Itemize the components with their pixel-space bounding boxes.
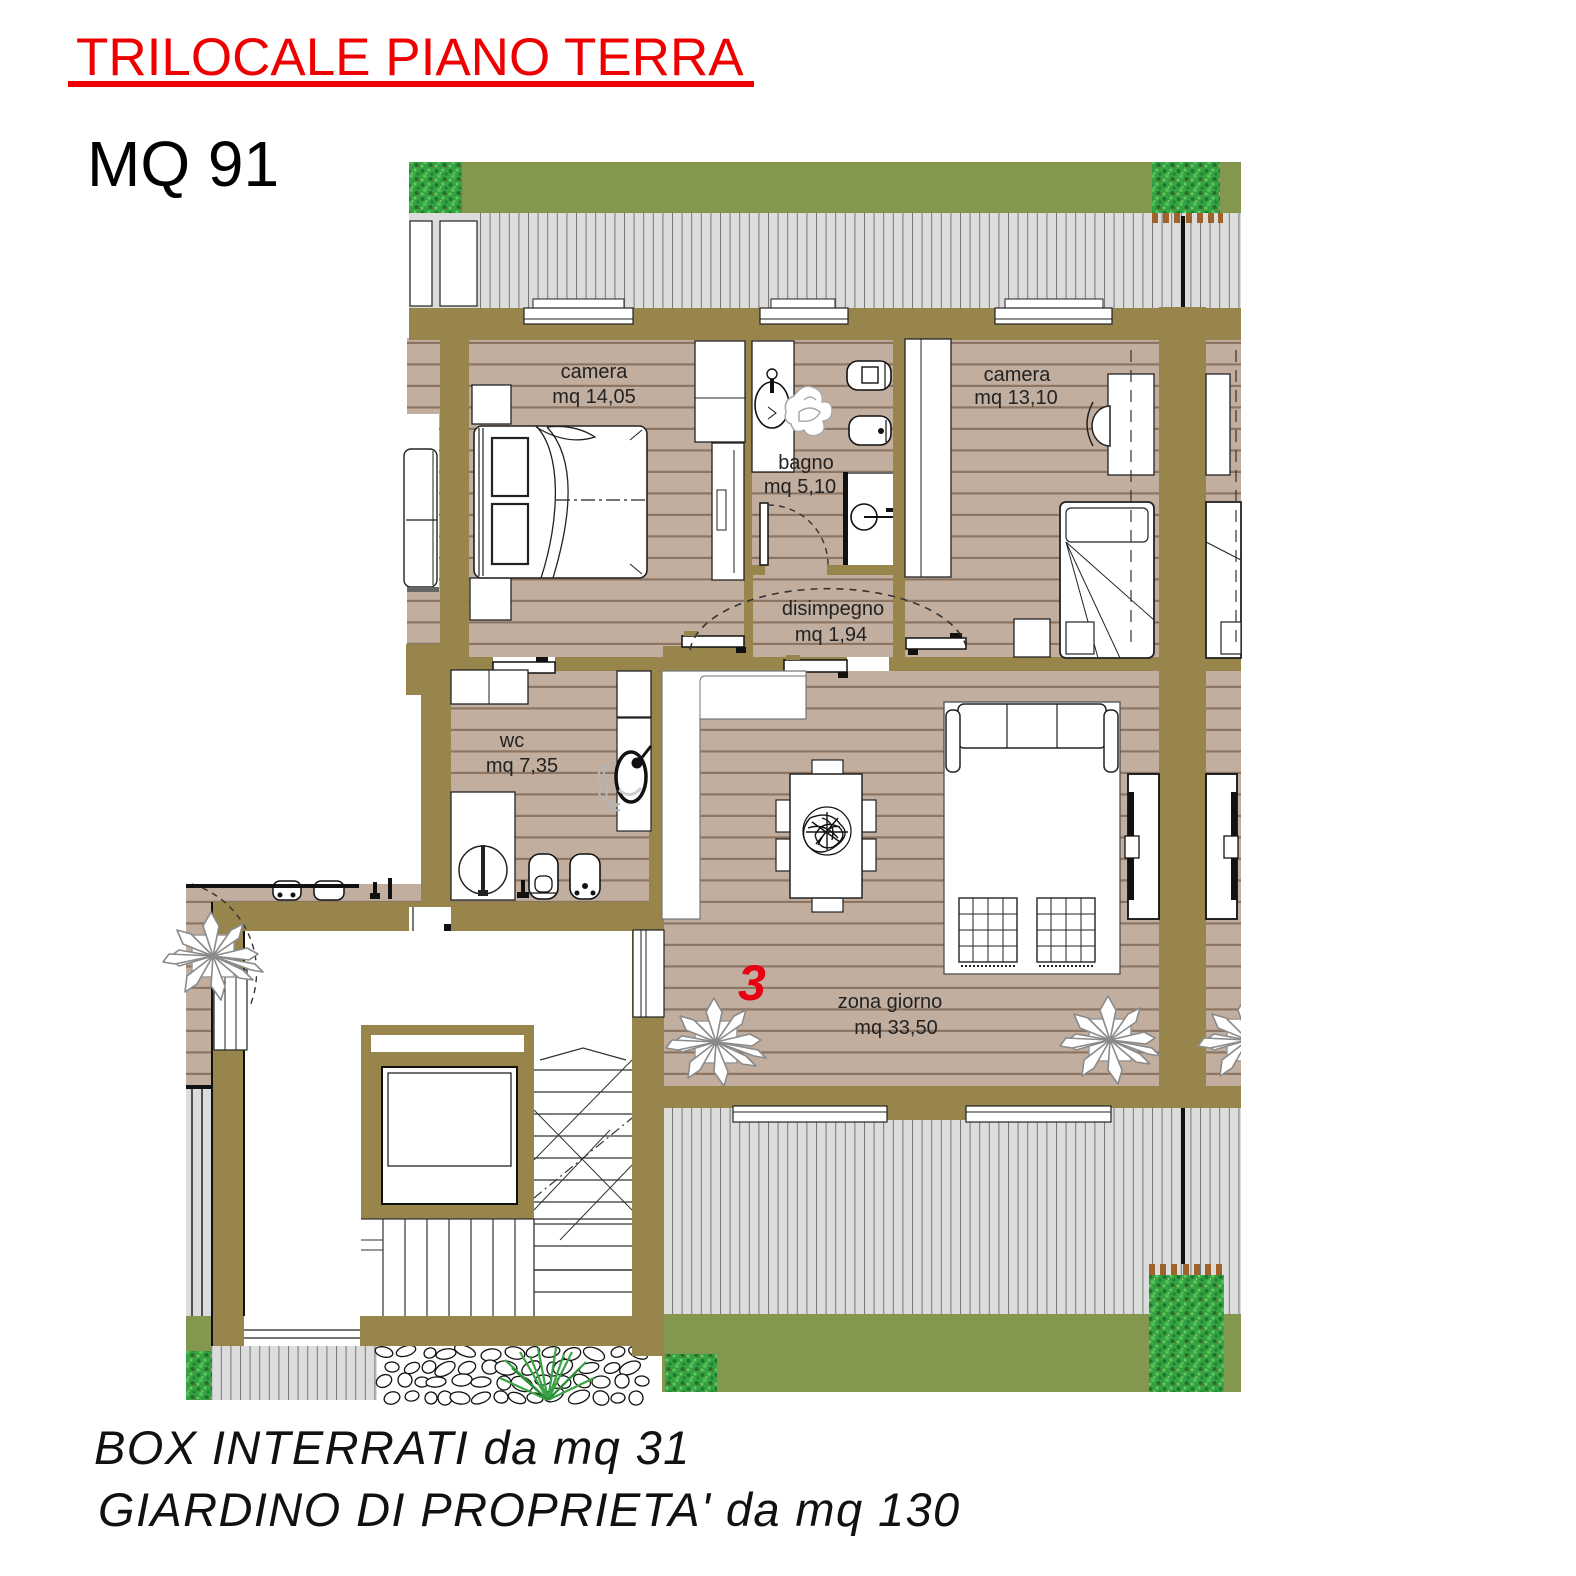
svg-text:disimpegno: disimpegno: [782, 598, 884, 620]
svg-text:mq 33,50: mq 33,50: [854, 1017, 937, 1039]
svg-text:BOX INTERRATI da mq 31: BOX INTERRATI da mq 31: [94, 1421, 691, 1474]
svg-text:MQ 91: MQ 91: [87, 128, 279, 200]
svg-text:mq 14,05: mq 14,05: [552, 386, 635, 408]
svg-text:3: 3: [738, 955, 766, 1011]
svg-text:bagno: bagno: [778, 452, 834, 474]
svg-text:zona giorno: zona giorno: [838, 991, 943, 1013]
svg-text:camera: camera: [984, 364, 1052, 386]
svg-text:GIARDINO DI PROPRIETA' da mq 1: GIARDINO DI PROPRIETA' da mq 130: [98, 1483, 961, 1536]
svg-text:mq 1,94: mq 1,94: [795, 624, 867, 646]
svg-text:mq 13,10: mq 13,10: [974, 387, 1057, 409]
svg-text:mq 5,10: mq 5,10: [764, 476, 836, 498]
svg-text:TRILOCALE PIANO TERRA: TRILOCALE PIANO TERRA: [76, 28, 744, 87]
svg-text:wc: wc: [499, 730, 524, 752]
svg-text:camera: camera: [561, 361, 629, 383]
svg-text:mq 7,35: mq 7,35: [486, 755, 558, 777]
